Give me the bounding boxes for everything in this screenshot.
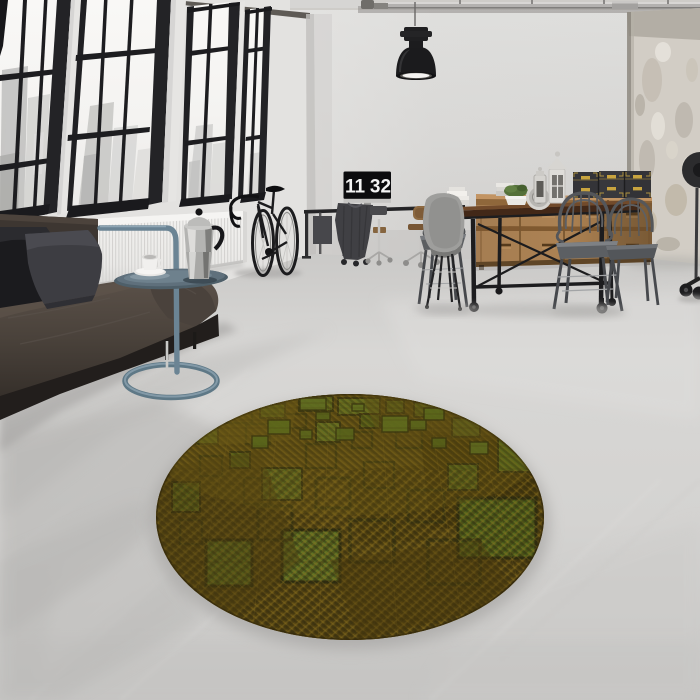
svg-text:32: 32: [370, 177, 391, 198]
svg-text:11: 11: [345, 177, 366, 198]
